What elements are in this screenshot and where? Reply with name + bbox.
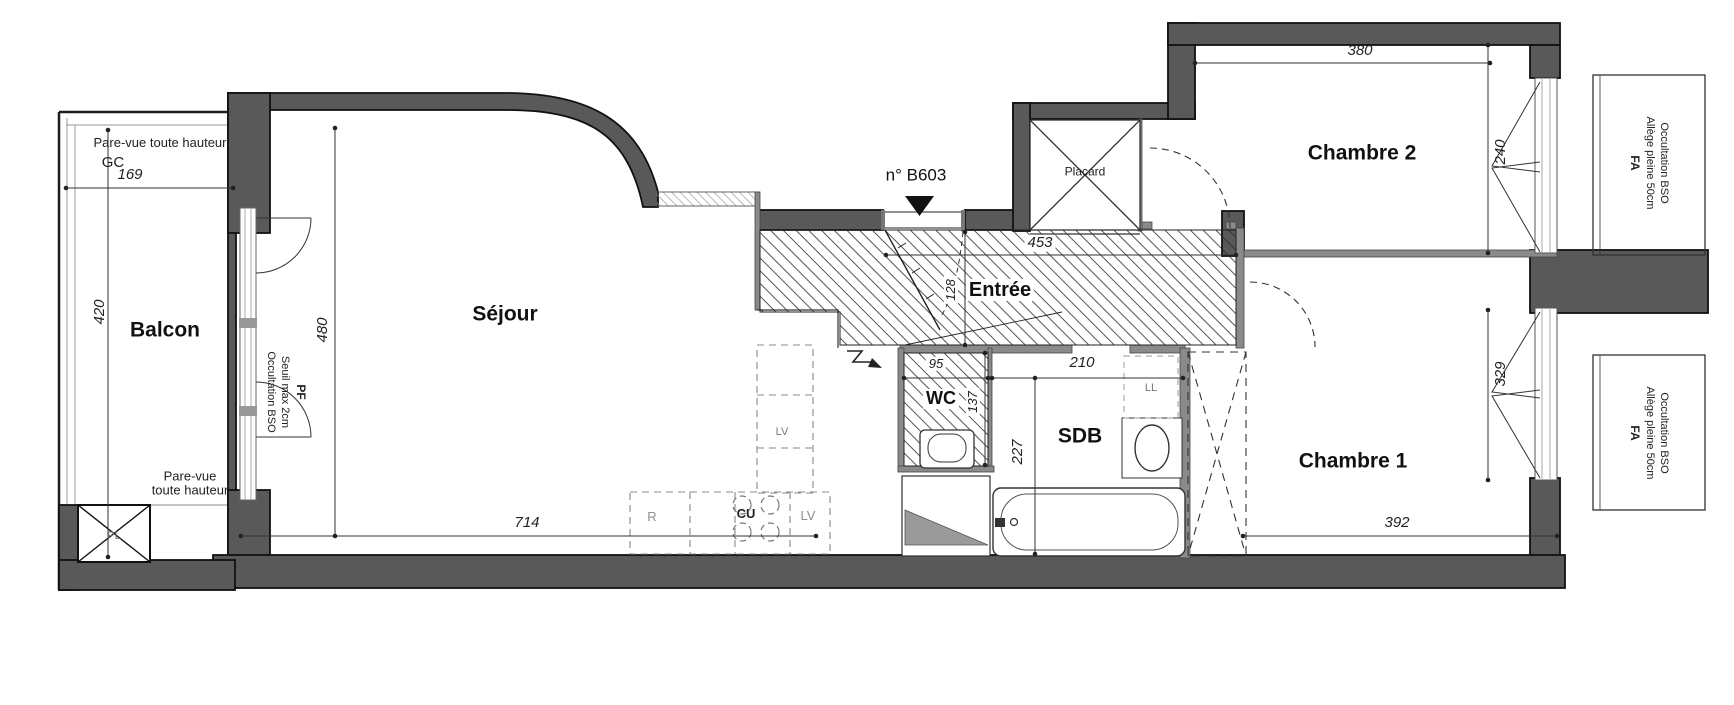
electric-panel-icon — [847, 351, 882, 368]
pare-vue-bottom-note: Pare-vue toute hauteur — [135, 470, 245, 499]
room-label-sejour: Séjour — [472, 302, 537, 325]
pf-window-note: PF Seuil max 2cm Occultation BSO — [264, 351, 308, 432]
dim-sdb-depth: 227 — [1010, 439, 1027, 464]
pf-note-line3: Occultation BSO — [264, 351, 278, 432]
bathtub — [993, 488, 1185, 556]
fa-note-line1: FA — [1627, 387, 1643, 480]
chambre2-window — [1492, 78, 1557, 253]
pf-note-line2: Seuil max 2cm — [278, 351, 292, 432]
pare-vue-bottom-line1: Pare-vue — [164, 469, 217, 484]
lv-column-label: LV — [776, 426, 789, 438]
fa-note-line2: Allège pleine 50cm — [1643, 387, 1657, 480]
floor-plan: Pare-vue toute hauteur GC 169 420 Balcon… — [0, 0, 1734, 705]
room-label-wc: WC — [923, 389, 959, 409]
entrance-marker-icon — [905, 196, 934, 216]
pl-shaft-label: PL — [107, 530, 120, 542]
dim-balcon-width: 169 — [117, 167, 142, 184]
washer-label: LL — [1145, 382, 1157, 394]
room-label-entree: Entrée — [966, 279, 1034, 301]
dim-chambre1-window: 329 — [1493, 361, 1510, 386]
floorplan-svg — [0, 0, 1734, 705]
dim-entree-depth: 128 — [944, 276, 958, 304]
cooktop-label: CU — [737, 507, 756, 521]
dim-sejour-width: 714 — [514, 515, 539, 532]
chambre1-window — [1492, 308, 1557, 480]
dishwasher-label: LV — [801, 509, 816, 523]
dim-entree-width: 453 — [1024, 235, 1055, 252]
dim-sejour-depth: 480 — [315, 317, 332, 342]
dim-wc-width: 95 — [926, 357, 946, 371]
wc-shaft — [902, 476, 990, 556]
balcony-window — [239, 208, 257, 500]
thin-wall-band — [656, 192, 759, 206]
fridge-label: R — [647, 510, 656, 524]
wardrobe-dashed — [1188, 352, 1246, 556]
pf-note-line1: PF — [293, 351, 309, 432]
room-label-sdb: SDB — [1058, 424, 1102, 447]
dim-wc-depth: 137 — [966, 388, 980, 416]
dim-balcon-depth: 420 — [92, 299, 109, 324]
dim-sdb-width: 210 — [1069, 355, 1094, 372]
fa-window-note-chambre1: FA Allège pleine 50cm Occultation BSO — [1627, 387, 1671, 480]
fa-note-line3: Occultation BSO — [1657, 117, 1671, 210]
dim-chambre2-window: 240 — [1493, 139, 1510, 164]
dim-chambre1-width: 392 — [1384, 515, 1409, 532]
room-label-balcon: Balcon — [130, 318, 200, 341]
room-label-chambre2: Chambre 2 — [1308, 141, 1417, 164]
washbasin — [1122, 418, 1182, 478]
dim-chambre2-width: 380 — [1347, 43, 1372, 60]
pare-vue-bottom-line2: toute hauteur — [152, 483, 229, 498]
fa-window-note-chambre2: FA Allège pleine 50cm Occultation BSO — [1627, 117, 1671, 210]
placard-label: Placard — [1065, 165, 1106, 178]
pare-vue-top-note: Pare-vue toute hauteur — [94, 136, 227, 150]
toilet — [920, 430, 974, 468]
room-label-chambre1: Chambre 1 — [1299, 449, 1408, 472]
fa-note-line1: FA — [1627, 117, 1643, 210]
fa-note-line3: Occultation BSO — [1657, 387, 1671, 480]
fa-note-line2: Allège pleine 50cm — [1643, 117, 1657, 210]
unit-number-label: n° B603 — [886, 167, 947, 186]
